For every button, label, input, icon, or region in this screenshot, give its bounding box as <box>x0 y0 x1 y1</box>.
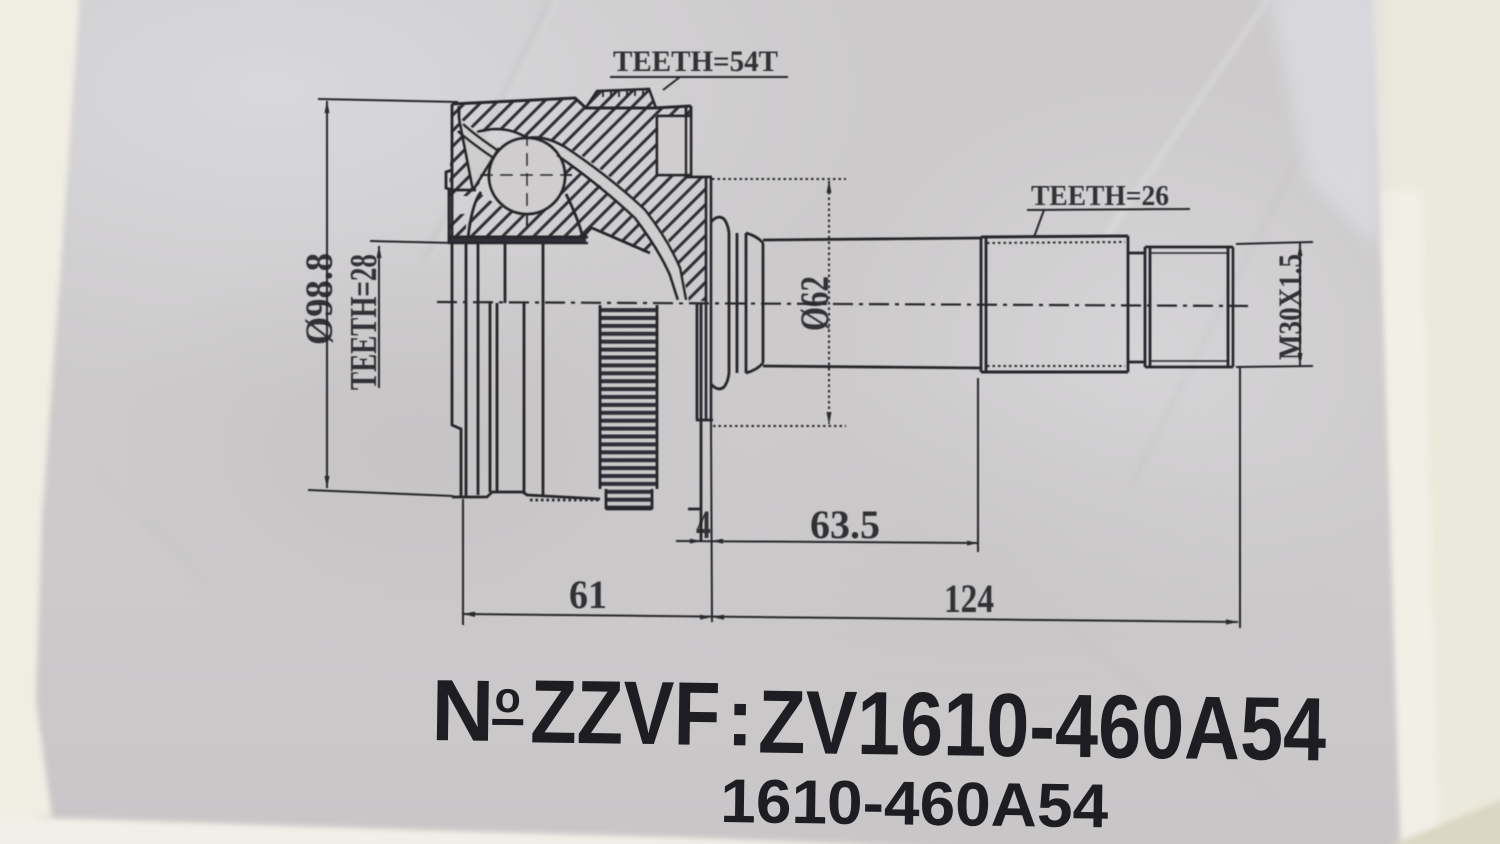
svg-text:M30X1.5: M30X1.5 <box>1273 254 1309 360</box>
svg-text:4: 4 <box>696 502 711 547</box>
svg-text:o: o <box>494 674 521 722</box>
svg-text:ZV1610-460A54: ZV1610-460A54 <box>758 673 1327 781</box>
svg-text:TEETH=28: TEETH=28 <box>343 254 385 390</box>
svg-text::: : <box>726 672 755 763</box>
svg-text:124: 124 <box>944 576 994 621</box>
svg-text:TEETH=26: TEETH=26 <box>1031 180 1169 212</box>
svg-text:N: N <box>431 662 495 760</box>
svg-text:Ø98.8: Ø98.8 <box>298 253 341 345</box>
svg-text:TEETH=54T: TEETH=54T <box>613 45 778 78</box>
svg-text:ZZVF: ZZVF <box>530 662 721 765</box>
svg-text:61: 61 <box>569 572 607 617</box>
svg-text:1610-460A54: 1610-460A54 <box>720 767 1109 841</box>
svg-text:63.5: 63.5 <box>810 502 880 547</box>
svg-text:Ø62: Ø62 <box>792 276 837 331</box>
